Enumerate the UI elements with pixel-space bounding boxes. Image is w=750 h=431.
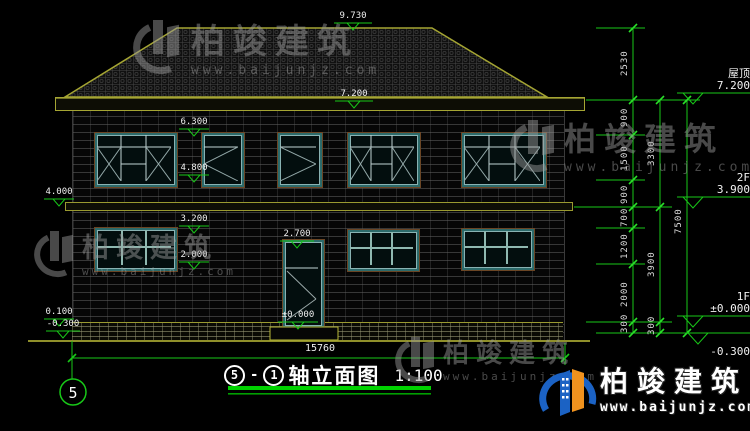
- watermark-url: www.baijunjz.com: [600, 400, 750, 415]
- watermark-brand: 柏竣建筑: [564, 114, 750, 160]
- dim-inner-300: 300: [620, 314, 630, 332]
- overall-width-label: 15760: [282, 343, 358, 354]
- ground-level-value: -0.300: [662, 346, 750, 358]
- right-marker-roof: 屋顶 7.200: [677, 68, 750, 106]
- watermark-corner-colored: 柏竣建筑 www.baijunjz.com: [536, 360, 750, 422]
- marker-eave: 7.200: [335, 89, 373, 109]
- belt-elevation: 4.000: [44, 187, 74, 198]
- door-top-elevation: 2.700: [280, 229, 314, 240]
- right-marker-1f: 1F ±0.000: [677, 291, 750, 329]
- plinth-top-elevation: 0.100: [44, 307, 74, 318]
- right-marker-ground: -0.300: [662, 332, 750, 358]
- f2-window-top-elevation: 6.300: [179, 117, 209, 128]
- right-marker-2f: 2F 3.900: [677, 172, 750, 210]
- watermark-left: 柏竣建筑 www.baijunjz.com: [32, 226, 236, 278]
- marker-ground-left: -0.300: [46, 319, 80, 339]
- title-axis-start-bubble: 5: [224, 365, 245, 386]
- baijun-logo-color-icon: [536, 360, 600, 422]
- dim-middle-300: 300: [647, 316, 657, 334]
- title-axis-end-bubble: 1: [263, 365, 284, 386]
- dim-inner-700: 700: [620, 208, 630, 227]
- watermark-brand: 柏竣建筑: [82, 226, 236, 265]
- ground-elevation-left: -0.300: [46, 319, 80, 330]
- dim-inner-2530: 2530: [620, 38, 630, 88]
- watermark-url: www.baijunjz.com: [191, 63, 380, 78]
- axis-bubble-5: 5: [64, 384, 82, 402]
- watermark-brand: 柏竣建筑: [191, 14, 380, 63]
- title-underline-thin: [228, 393, 431, 395]
- watermark-top: 柏竣建筑 www.baijunjz.com: [131, 14, 380, 78]
- watermark-right: 柏竣建筑 www.baijunjz.com: [508, 114, 750, 175]
- f2-level-value: 3.900: [677, 184, 750, 196]
- watermark-brand: 柏竣建筑: [600, 360, 750, 400]
- marker-door-top: 2.700: [280, 229, 314, 249]
- door-base-elevation: ±0.000: [278, 310, 318, 321]
- baijun-logo-icon: [131, 14, 191, 68]
- eave-elevation: 7.200: [335, 89, 373, 100]
- f2-window-sill-elevation: 4.800: [179, 163, 209, 174]
- baijun-logo-icon: [32, 226, 82, 274]
- dim-inner-900b: 900: [620, 183, 630, 205]
- watermark-url: www.baijunjz.com: [564, 160, 750, 175]
- roof-level-value: 7.200: [677, 80, 750, 92]
- baijun-logo-icon: [508, 114, 564, 168]
- marker-f2-window-sill: 4.800: [179, 163, 209, 183]
- title-separator: -: [250, 367, 258, 383]
- marker-door-base: ±0.000: [278, 310, 318, 330]
- marker-belt: 4.000: [44, 187, 74, 207]
- elevation-drawing-canvas: 9.730 7.200 6.300 4.800 3.200 2.000 2.70…: [0, 0, 750, 431]
- dim-inner-1200: 1200: [620, 231, 630, 261]
- marker-f2-window-top: 6.300: [179, 117, 209, 137]
- f1-level-value: ±0.000: [677, 303, 750, 315]
- dim-outer-7500: 7500: [674, 198, 684, 244]
- dim-middle-3900: 3900: [647, 242, 657, 286]
- title-name: 轴立面图: [288, 360, 380, 390]
- watermark-url: www.baijunjz.com: [82, 265, 236, 278]
- f1-window-top-elevation: 3.200: [179, 214, 209, 225]
- dim-inner-2000: 2000: [620, 273, 630, 315]
- baijun-logo-icon: [393, 333, 443, 379]
